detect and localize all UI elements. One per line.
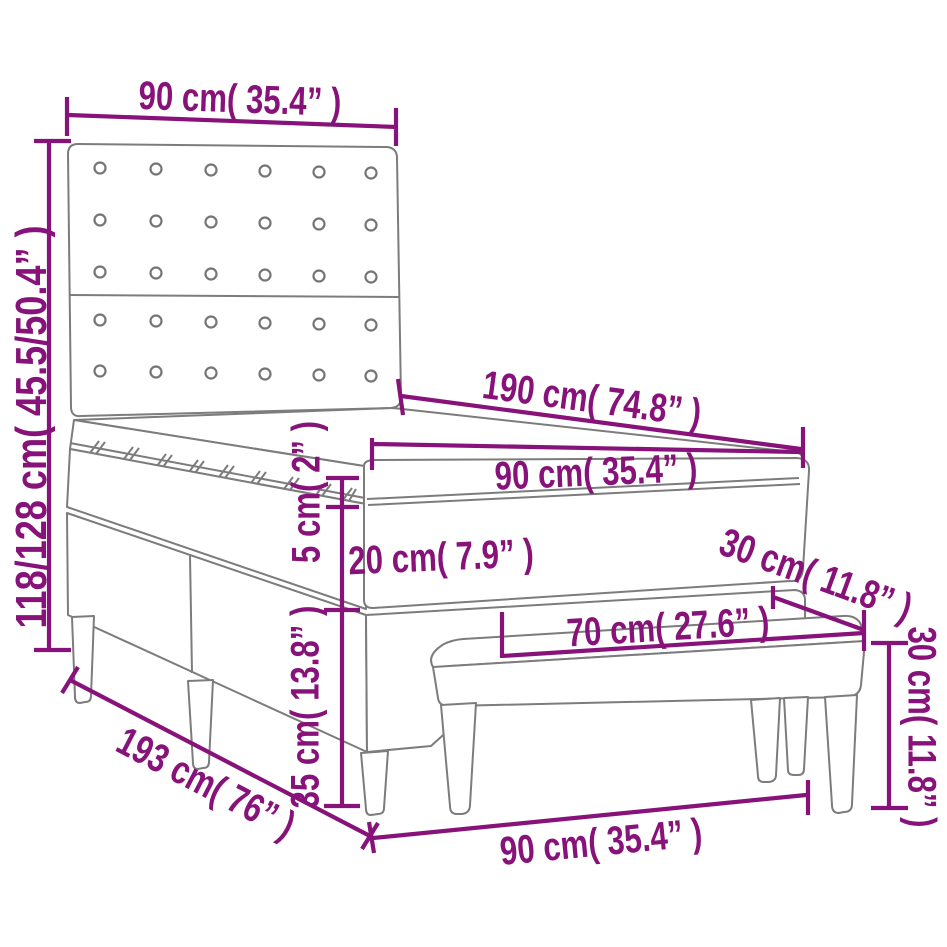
button-icon [151,316,162,327]
button-icon [366,168,377,179]
button-icon [314,370,325,381]
dim-topper-label: 5 cm( 2” ) [284,421,329,563]
dim-bed-width-label: 90 cm( 35.4” ) [494,445,699,498]
bench-leg [751,698,780,782]
button-icon [95,215,106,226]
bench-leg [825,695,857,813]
dim-bed-width-floor: 90 cm( 35.4” ) [369,780,808,874]
button-icon [151,367,162,378]
button-icon [260,166,271,177]
headboard [68,144,401,416]
bed-leg [361,751,388,815]
button-icon [151,216,162,227]
button-icon [366,320,377,331]
dim-overall-height-label: 118/128 cm( 45.5/50.4” ) [6,225,55,628]
button-icon [151,268,162,279]
button-icon [366,272,377,283]
diagram-canvas: 90 cm( 35.4” ) 118/128 cm( 45.5/50.4” ) … [0,0,947,947]
button-icon [206,317,217,328]
button-icon [314,219,325,230]
button-icon [314,271,325,282]
bench-leg [784,697,808,775]
button-icon [206,269,217,280]
dim-bench-height: 30 cm( 11.8” ) [871,626,944,827]
button-icon [366,371,377,382]
button-icon [206,165,217,176]
dim-bench-height-label: 30 cm( 11.8” ) [900,626,945,827]
button-icon [206,217,217,228]
button-icon [95,366,106,377]
button-icon [260,270,271,281]
dim-headboard-width: 90 cm( 35.4” ) [67,73,397,146]
dim-base-height-label: 35 cm( 13.8” ) [283,606,328,809]
button-icon [151,164,162,175]
button-icon [206,368,217,379]
button-icon [314,167,325,178]
dim-overall-height: 118/128 cm( 45.5/50.4” ) [6,141,71,650]
button-icon [95,163,106,174]
button-icon [314,319,325,330]
dim-bed-width-floor-label: 90 cm( 35.4” ) [498,810,704,874]
button-icon [95,315,106,326]
button-icon [260,218,271,229]
bench-leg [441,703,476,814]
button-icon [260,369,271,380]
button-icon [366,220,377,231]
dim-headboard-width-label: 90 cm( 35.4” ) [138,73,342,125]
button-icon [260,318,271,329]
button-icon [95,267,106,278]
bed-dimension-diagram: 90 cm( 35.4” ) 118/128 cm( 45.5/50.4” ) … [0,0,947,947]
dim-mattress-label: 20 cm( 7.9” ) [347,531,534,584]
